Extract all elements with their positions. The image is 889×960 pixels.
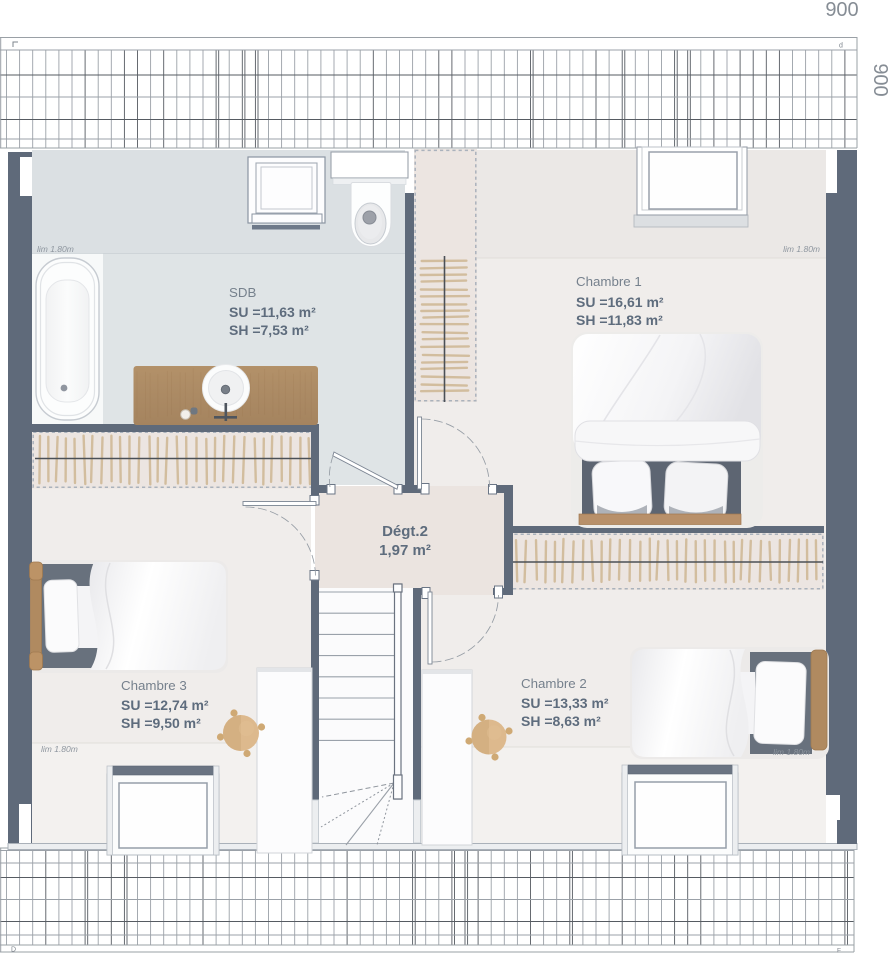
svg-text:1,97 m²: 1,97 m² — [379, 542, 431, 559]
svg-text:SH =7,53 m²: SH =7,53 m² — [229, 322, 309, 338]
svg-text:Dégt.2: Dégt.2 — [382, 523, 428, 540]
svg-text:Chambre 3: Chambre 3 — [121, 678, 187, 693]
svg-text:900: 900 — [869, 63, 889, 96]
svg-text:lim 1.80m: lim 1.80m — [41, 744, 78, 754]
svg-text:SU =12,74 m²: SU =12,74 m² — [121, 697, 209, 713]
svg-text:lim 1.80m: lim 1.80m — [773, 747, 810, 757]
svg-text:SU =11,63 m²: SU =11,63 m² — [229, 304, 316, 320]
svg-text:SH =9,50 m²: SH =9,50 m² — [121, 715, 201, 731]
svg-text:SDB: SDB — [229, 285, 256, 300]
svg-text:900: 900 — [825, 0, 858, 21]
svg-text:Chambre 2: Chambre 2 — [521, 676, 587, 691]
svg-text:lim 1.80m: lim 1.80m — [37, 244, 74, 254]
svg-text:Chambre 1: Chambre 1 — [576, 274, 642, 289]
svg-text:d: d — [839, 43, 843, 50]
svg-text:F: F — [837, 948, 841, 955]
svg-text:SH =11,83 m²: SH =11,83 m² — [576, 312, 663, 328]
svg-text:lim 1.80m: lim 1.80m — [783, 244, 820, 254]
svg-text:D: D — [11, 947, 16, 954]
svg-text:SU =16,61 m²: SU =16,61 m² — [576, 294, 664, 310]
svg-text:SU =13,33 m²: SU =13,33 m² — [521, 695, 609, 711]
svg-text:SH =8,63 m²: SH =8,63 m² — [521, 713, 601, 729]
